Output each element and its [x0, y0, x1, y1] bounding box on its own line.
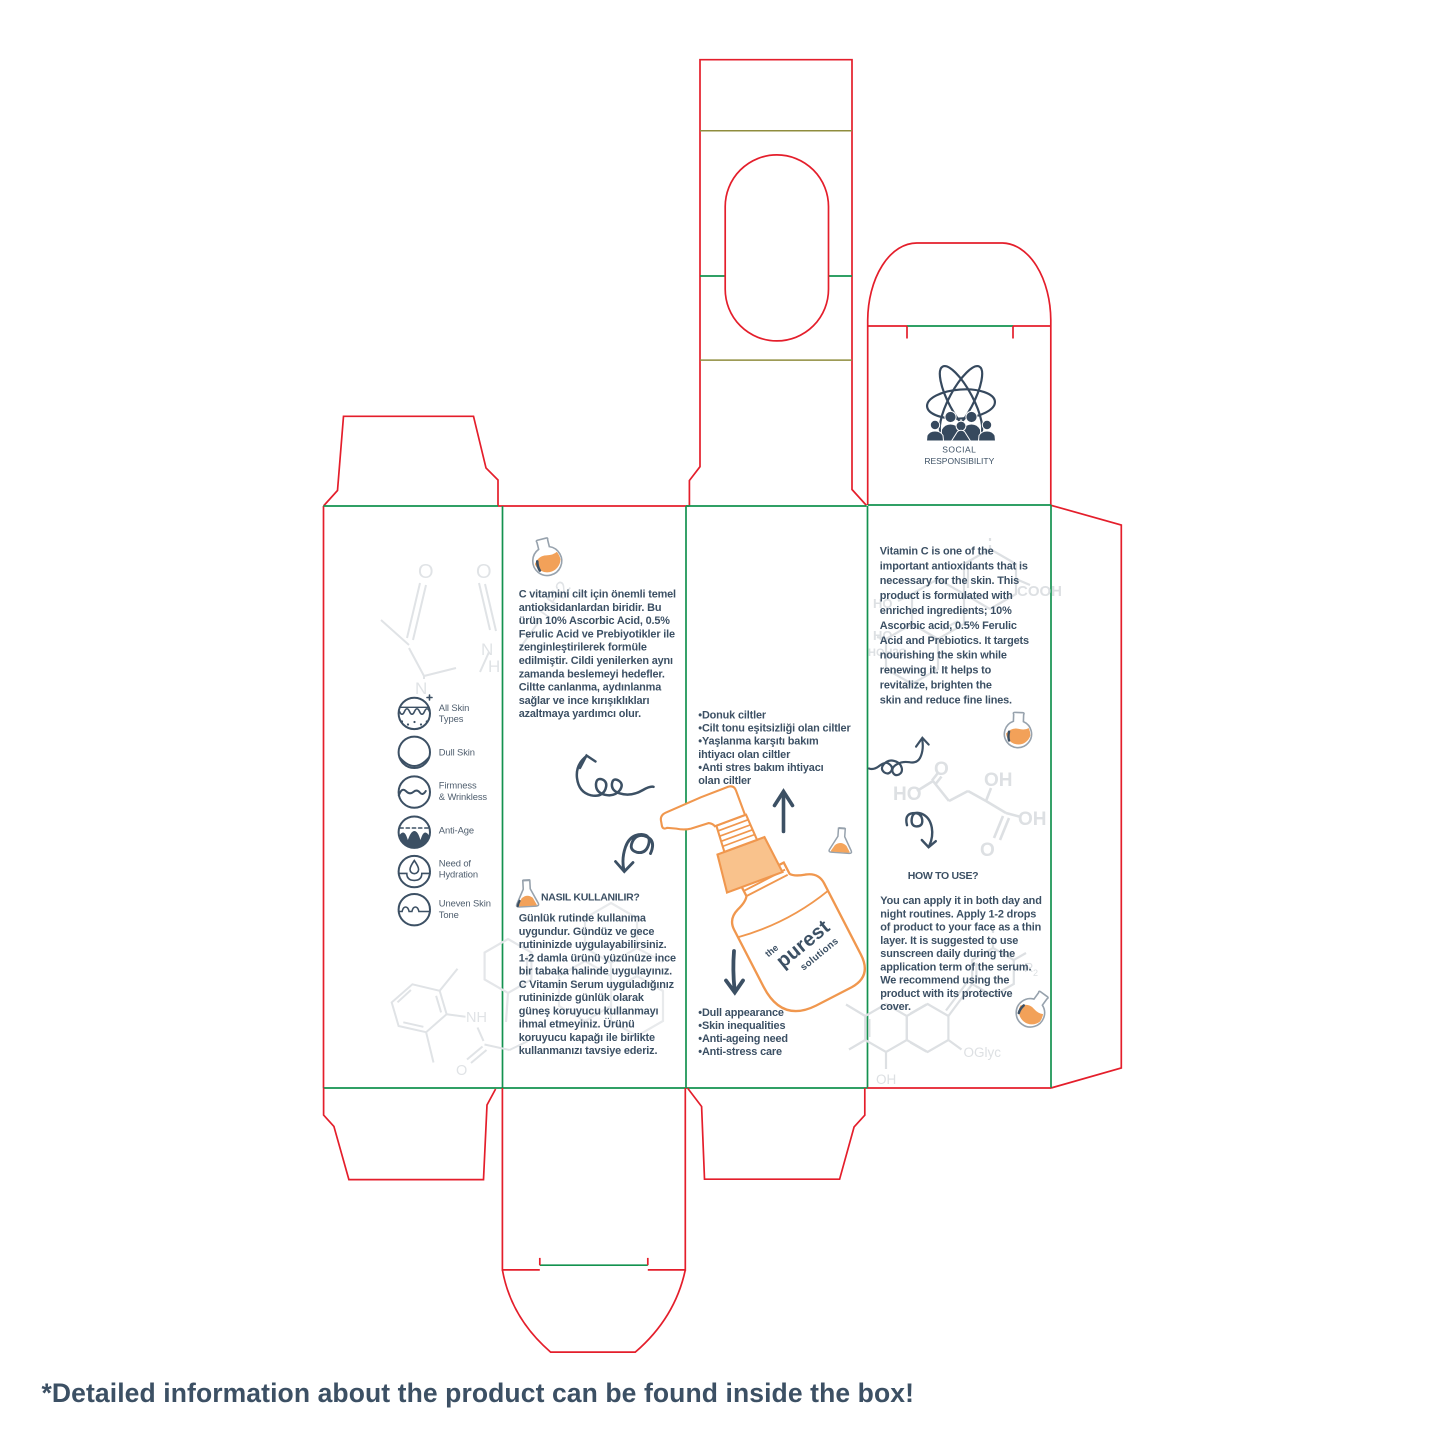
svg-text:cover.: cover. — [880, 1001, 911, 1013]
svg-text:NH: NH — [466, 1010, 487, 1026]
svg-text:layer. It is suggested to use: layer. It is suggested to use — [880, 935, 1018, 947]
svg-text:renewing it. It helps to: renewing it. It helps to — [880, 665, 992, 677]
svg-text:RESPONSIBILITY: RESPONSIBILITY — [924, 456, 994, 466]
svg-text:1-2 damla ürünü yüzünüze ince: 1-2 damla ürünü yüzünüze ince — [519, 952, 676, 964]
svg-text:We recommend using the: We recommend using the — [880, 975, 1009, 987]
svg-text:H: H — [488, 657, 500, 676]
svg-text:Ascorbic acid, 0.5% Ferulic: Ascorbic acid, 0.5% Ferulic — [880, 620, 1017, 632]
svg-text:C vitamini cilt için önemli te: C vitamini cilt için önemli temel — [519, 589, 676, 601]
svg-text:•Cilt tonu eşitsizliği olan ci: •Cilt tonu eşitsizliği olan ciltler — [698, 723, 851, 735]
svg-text:& Wrinkless: & Wrinkless — [439, 791, 488, 802]
svg-text:Hydration: Hydration — [439, 869, 478, 880]
svg-text:All Skin: All Skin — [439, 702, 469, 713]
svg-text:antioksidanlardan biridir. Bu: antioksidanlardan biridir. Bu — [519, 602, 662, 614]
svg-text:sunscreen daily during the: sunscreen daily during the — [880, 948, 1015, 960]
svg-text:•Anti-ageing need: •Anti-ageing need — [698, 1033, 788, 1045]
svg-text:N: N — [415, 679, 427, 698]
svg-text:•Anti stres bakım ihtiyacı: •Anti stres bakım ihtiyacı — [698, 762, 823, 774]
svg-text:•Yaşlanma karşıtı bakım: •Yaşlanma karşıtı bakım — [698, 736, 819, 748]
svg-text:ihmal etmeyiniz. Ürünü: ihmal etmeyiniz. Ürünü — [519, 1018, 635, 1031]
svg-text:koruyucu kapağı ile birlikte: koruyucu kapağı ile birlikte — [519, 1032, 655, 1044]
svg-text:Ciltte canlanma, aydınlanma: Ciltte canlanma, aydınlanma — [519, 682, 663, 694]
svg-text:O: O — [456, 1063, 467, 1079]
svg-text:O: O — [418, 561, 434, 583]
svg-text:OH: OH — [876, 1072, 896, 1087]
svg-text:of product to your face as a t: of product to your face as a thin — [880, 922, 1041, 934]
svg-text:Vitamin C is one of the: Vitamin C is one of the — [880, 545, 994, 557]
svg-text:Uneven Skin: Uneven Skin — [439, 898, 491, 909]
svg-text:You can apply it in both day a: You can apply it in both day and — [880, 895, 1041, 907]
svg-text:night routines. Apply 1-2 drop: night routines. Apply 1-2 drops — [880, 908, 1036, 920]
svg-text:Günlük rutinde kullanıma: Günlük rutinde kullanıma — [519, 913, 647, 925]
svg-text:Anti-Age: Anti-Age — [439, 825, 474, 836]
svg-text:SOCIAL: SOCIAL — [942, 445, 976, 455]
svg-text:2: 2 — [1033, 968, 1038, 978]
svg-text:edilmiştir. Cildi yenilerken a: edilmiştir. Cildi yenilerken aynı — [519, 655, 673, 667]
svg-text:O: O — [476, 561, 492, 583]
svg-text:OH: OH — [984, 770, 1013, 791]
svg-text:rutininizde uygulayabilirsiniz: rutininizde uygulayabilirsiniz. — [519, 939, 667, 951]
svg-text:Firmness: Firmness — [439, 780, 477, 791]
svg-text:OH: OH — [1018, 809, 1047, 830]
svg-text:necessary for the skin. This: necessary for the skin. This — [880, 575, 1019, 587]
svg-text:ürün 10% Ascorbic Acid, 0.5%: ürün 10% Ascorbic Acid, 0.5% — [519, 615, 671, 627]
svg-text:revitalize, brighten the: revitalize, brighten the — [880, 680, 992, 692]
svg-text:product is formulated with: product is formulated with — [880, 590, 1013, 602]
svg-text:O: O — [980, 840, 995, 861]
svg-text:ihtiyacı olan ciltler: ihtiyacı olan ciltler — [698, 749, 791, 761]
svg-text:skin and reduce fine lines.: skin and reduce fine lines. — [880, 694, 1012, 706]
svg-text:güneş koruyucu kullanmayı: güneş koruyucu kullanmayı — [519, 1005, 659, 1017]
svg-text:zenginleştirilerek formüle: zenginleştirilerek formüle — [519, 642, 647, 654]
svg-text:enriched ingredients; 10%: enriched ingredients; 10% — [880, 605, 1012, 617]
svg-text:kullanmanızı tavsiye ederiz.: kullanmanızı tavsiye ederiz. — [519, 1045, 658, 1057]
svg-text:application term of the serum.: application term of the serum. — [880, 961, 1031, 973]
svg-text:zamanda beslemeyi hedefler.: zamanda beslemeyi hedefler. — [519, 668, 665, 680]
svg-text:•Skin inequalities: •Skin inequalities — [698, 1020, 785, 1032]
svg-text:Need of: Need of — [439, 857, 472, 868]
svg-text:OGlyc: OGlyc — [964, 1045, 1002, 1060]
svg-text:HOW TO USE?: HOW TO USE? — [908, 870, 979, 882]
svg-text:*Detailed information about th: *Detailed information about the product … — [42, 1378, 915, 1408]
svg-text:Ferulic Acid ve Prebiyotikler: Ferulic Acid ve Prebiyotikler ile — [519, 628, 675, 640]
svg-text:NASIL KULLANILIR?: NASIL KULLANILIR? — [541, 891, 640, 903]
svg-text:azaltmaya yardımcı olur.: azaltmaya yardımcı olur. — [519, 708, 641, 720]
svg-text:Types: Types — [439, 713, 464, 724]
svg-text:product with its protective: product with its protective — [880, 988, 1012, 1000]
svg-text:Tone: Tone — [439, 909, 459, 920]
svg-text:rutininizde günlük olarak: rutininizde günlük olarak — [519, 992, 645, 1004]
svg-text:Acid and Prebiotics. It target: Acid and Prebiotics. It targets — [880, 635, 1029, 647]
svg-text:COOH: COOH — [1017, 583, 1062, 600]
svg-text:olan ciltler: olan ciltler — [698, 775, 752, 787]
svg-text:C Vitamin Serum uyguladığınız: C Vitamin Serum uyguladığınız — [519, 979, 675, 991]
svg-text:HO: HO — [893, 784, 922, 805]
svg-text:sağlar ve ince kırışıklıkları: sağlar ve ince kırışıklıkları — [519, 695, 650, 707]
svg-text:nourishing the skin while: nourishing the skin while — [880, 650, 1007, 662]
svg-text:•Anti-stress care: •Anti-stress care — [698, 1046, 782, 1058]
svg-text:•Dull appearance: •Dull appearance — [698, 1007, 784, 1019]
svg-text:bir tabaka halinde uygulayınız: bir tabaka halinde uygulayınız. — [519, 966, 672, 978]
svg-text:•Donuk ciltler: •Donuk ciltler — [698, 709, 767, 721]
svg-text:Dull Skin: Dull Skin — [439, 747, 475, 758]
svg-text:important antioxidants that is: important antioxidants that is — [880, 560, 1028, 572]
svg-text:uygundur. Gündüz ve gece: uygundur. Gündüz ve gece — [519, 926, 655, 938]
svg-text:O: O — [934, 759, 949, 780]
